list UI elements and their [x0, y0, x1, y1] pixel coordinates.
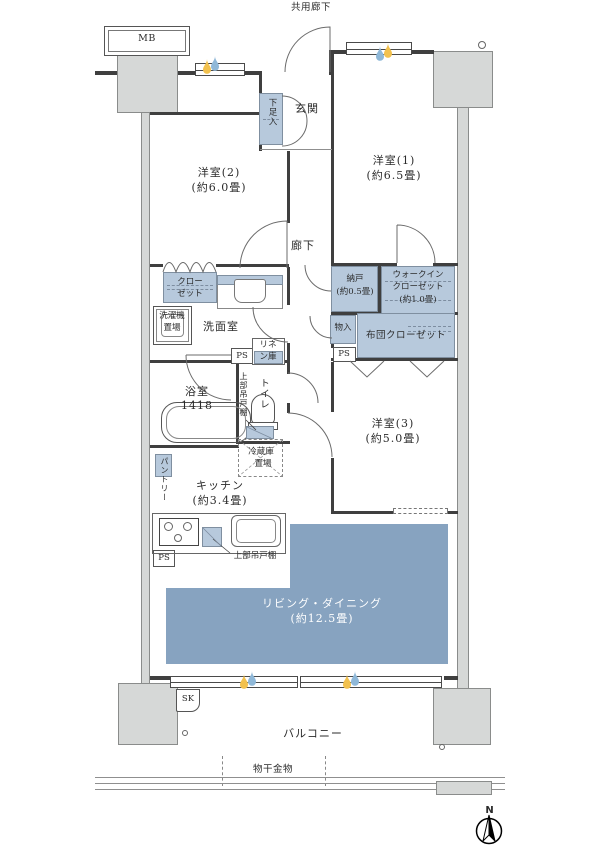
genkan-label: 玄関	[295, 102, 319, 116]
futon-closet-label: 布団クローゼット	[366, 330, 446, 342]
senmenshitsu-label: 洗面室	[203, 320, 239, 334]
washer-label-1: 洗濯機	[159, 311, 185, 322]
yokushitsu-size: 1418	[181, 399, 213, 413]
yokushitsu-name: 浴室	[185, 385, 209, 399]
yoshitsu2-door-arc	[240, 221, 287, 268]
wic-label-1: ウォークイン	[392, 270, 443, 281]
nando-door-arc	[305, 265, 331, 291]
yoshitsu3-name: 洋室(3)	[372, 417, 415, 431]
yoshitsu1-size: (約6.5畳)	[366, 169, 421, 183]
rouka-label: 廊下	[291, 239, 315, 253]
compass-n-label: N	[485, 805, 494, 818]
plan-vector-overlay	[0, 0, 600, 852]
monoire-label: 物入	[334, 323, 351, 334]
yoshitsu2-name: 洋室(2)	[198, 166, 241, 180]
flame-icon	[248, 671, 256, 686]
yoshitsu2-size: (約6.0畳)	[191, 181, 246, 195]
wic-size: (約1.0畳)	[399, 295, 436, 306]
flame-icon	[240, 674, 248, 689]
entrance-door-arc	[285, 27, 330, 72]
futon-door-mark	[350, 361, 384, 377]
balcony-label: バルコニー	[283, 727, 343, 741]
flame-icon	[211, 56, 219, 71]
linen-label-2: ン庫	[259, 352, 276, 363]
flame-icon	[343, 674, 351, 689]
flame-icon	[384, 43, 392, 58]
toilet-label: トイレ	[256, 378, 270, 410]
kitchen-name: キッチン	[196, 479, 244, 493]
flame-icon	[203, 59, 211, 74]
nando-name: 納戸	[346, 274, 363, 285]
yoshitsu3-size: (約5.0畳)	[365, 432, 420, 446]
flame-icon	[376, 46, 384, 61]
closet-folding-door	[163, 263, 216, 273]
flame-icons	[203, 43, 392, 689]
ps-label-right: PS	[338, 349, 350, 360]
fridge-label-2: 置場	[254, 459, 271, 470]
kitchen-size: (約3.4畳)	[192, 494, 247, 508]
ps-label-bottom: PS	[158, 553, 170, 564]
getabako-label: 下足入	[266, 98, 278, 127]
mb-label: MB	[138, 33, 156, 45]
senmen-door-arc	[253, 307, 288, 342]
flame-icon	[351, 671, 359, 686]
ps-label-left: PS	[236, 351, 248, 362]
tsuridana-kitchen-label: 上部吊戸棚	[234, 551, 277, 562]
toilet-door-arc	[288, 373, 318, 403]
sk-label: SK	[182, 694, 194, 705]
living-size: (約12.5畳)	[290, 612, 353, 626]
wic-door-arc	[397, 225, 435, 263]
hall-door-arc	[288, 413, 332, 457]
linen-label-1: リネ	[259, 340, 276, 351]
washer-label-2: 置場	[163, 323, 180, 334]
closet-label-1: クロー	[177, 277, 203, 288]
nando-size: (約0.5畳)	[336, 287, 373, 298]
futon-door-mark	[410, 361, 444, 377]
compass-icon	[477, 815, 502, 844]
wic-label-2: クローゼット	[392, 282, 443, 293]
living-name: リビング・ダイニング	[262, 597, 382, 611]
pantry-label: パントリー	[159, 457, 170, 502]
corridor-label: 共用廊下	[291, 2, 331, 14]
fridge-label-1: 冷蔵庫	[248, 447, 274, 458]
closet-label-2: ゼット	[177, 289, 203, 300]
monohoshi-label: 物干金物	[253, 764, 293, 776]
monoire-door-arc	[310, 316, 332, 338]
tsuridana-toilet-label: 上部吊戸棚	[238, 372, 249, 417]
yoshitsu1-name: 洋室(1)	[373, 154, 416, 168]
floorplan: 共用廊下 MB 玄関 下足入 洋室(2) (約6.0畳) 洋室(1) (約6.5…	[0, 0, 600, 852]
